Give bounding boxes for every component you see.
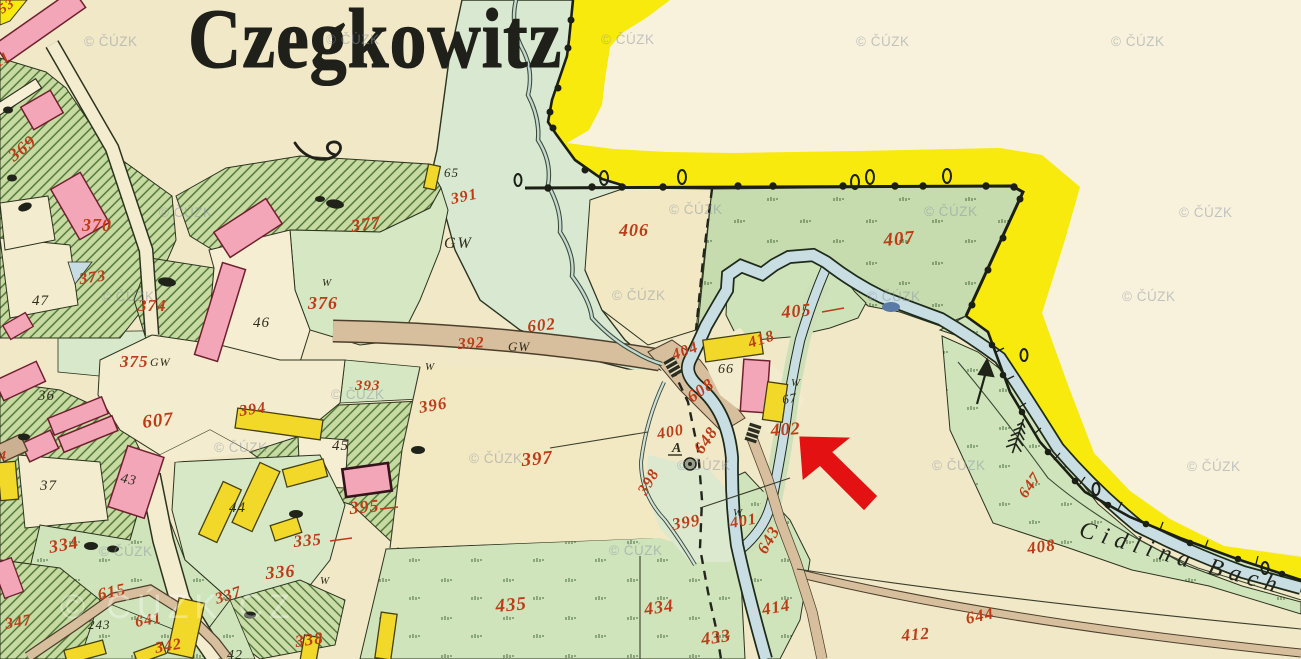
svg-text:© ČÚZK CZ: © ČÚZK CZ <box>60 588 296 626</box>
svg-text:4: 4 <box>0 449 7 464</box>
svg-text:GW: GW <box>444 235 473 252</box>
svg-text:W: W <box>425 361 435 373</box>
svg-text:397: 397 <box>520 447 555 471</box>
svg-text:© ČÚZK: © ČÚZK <box>677 458 730 473</box>
svg-text:47: 47 <box>32 293 50 309</box>
svg-text:© ČÚZK: © ČÚZK <box>609 543 662 558</box>
svg-text:407: 407 <box>882 227 917 251</box>
svg-text:© ČÚZK: © ČÚZK <box>331 387 384 402</box>
svg-text:338: 338 <box>293 628 325 651</box>
svg-text:44: 44 <box>229 500 246 516</box>
svg-text:395: 395 <box>348 495 381 518</box>
svg-text:412: 412 <box>900 624 931 645</box>
svg-text:435: 435 <box>494 593 528 617</box>
svg-text:© ČÚZK: © ČÚZK <box>1179 205 1232 220</box>
svg-text:433: 433 <box>699 625 732 649</box>
svg-text:37: 37 <box>39 478 58 494</box>
svg-text:406: 406 <box>618 220 649 240</box>
svg-text:© ČÚZK: © ČÚZK <box>159 205 212 220</box>
svg-text:© ČÚZK: © ČÚZK <box>84 34 137 49</box>
svg-text:67: 67 <box>781 390 798 407</box>
svg-text:© ČÚZK: © ČÚZK <box>326 32 379 47</box>
svg-text:© ČÚZK: © ČÚZK <box>469 451 522 466</box>
svg-text:602: 602 <box>526 314 556 336</box>
svg-text:© ČÚZK: © ČÚZK <box>101 289 154 304</box>
svg-text:© ČÚZK: © ČÚZK <box>214 440 267 455</box>
svg-text:W: W <box>733 507 743 519</box>
svg-text:377: 377 <box>349 212 382 236</box>
svg-text:© ČÚZK: © ČÚZK <box>924 204 977 219</box>
svg-text:GW: GW <box>150 355 171 369</box>
svg-text:66: 66 <box>718 362 734 377</box>
svg-text:© ČÚZK: © ČÚZK <box>601 32 654 47</box>
svg-text:408: 408 <box>1025 535 1057 558</box>
svg-text:W: W <box>791 377 801 389</box>
svg-text:© ČÚZK: © ČÚZK <box>856 34 909 49</box>
svg-text:GW: GW <box>508 339 530 354</box>
svg-text:© ČÚZK: © ČÚZK <box>1111 34 1164 49</box>
svg-text:336: 336 <box>264 560 297 583</box>
svg-text:W: W <box>320 575 330 587</box>
svg-text:36: 36 <box>37 388 55 404</box>
svg-text:© ČÚZK: © ČÚZK <box>1187 459 1240 474</box>
svg-text:© ČÚZK: © ČÚZK <box>867 289 920 304</box>
svg-text:45: 45 <box>332 438 349 454</box>
svg-text:W: W <box>322 277 332 289</box>
svg-text:46: 46 <box>253 315 270 331</box>
svg-text:65: 65 <box>444 165 459 180</box>
svg-text:392: 392 <box>456 334 485 353</box>
svg-text:375: 375 <box>119 352 149 371</box>
svg-text:© ČÚZK: © ČÚZK <box>932 458 985 473</box>
svg-text:402: 402 <box>769 418 801 440</box>
svg-text:42: 42 <box>227 648 243 659</box>
svg-text:© ČÚZK: © ČÚZK <box>99 544 152 559</box>
svg-text:405: 405 <box>780 299 813 322</box>
svg-text:© ČÚZK: © ČÚZK <box>612 288 665 303</box>
svg-text:© ČÚZK: © ČÚZK <box>669 202 722 217</box>
svg-text:335: 335 <box>292 530 323 551</box>
svg-text:607: 607 <box>141 409 175 433</box>
svg-text:434: 434 <box>642 595 675 619</box>
svg-text:© ČÚZK: © ČÚZK <box>1122 289 1175 304</box>
svg-text:370: 370 <box>81 215 112 235</box>
svg-text:376: 376 <box>307 293 338 313</box>
svg-text:A: A <box>671 441 681 456</box>
